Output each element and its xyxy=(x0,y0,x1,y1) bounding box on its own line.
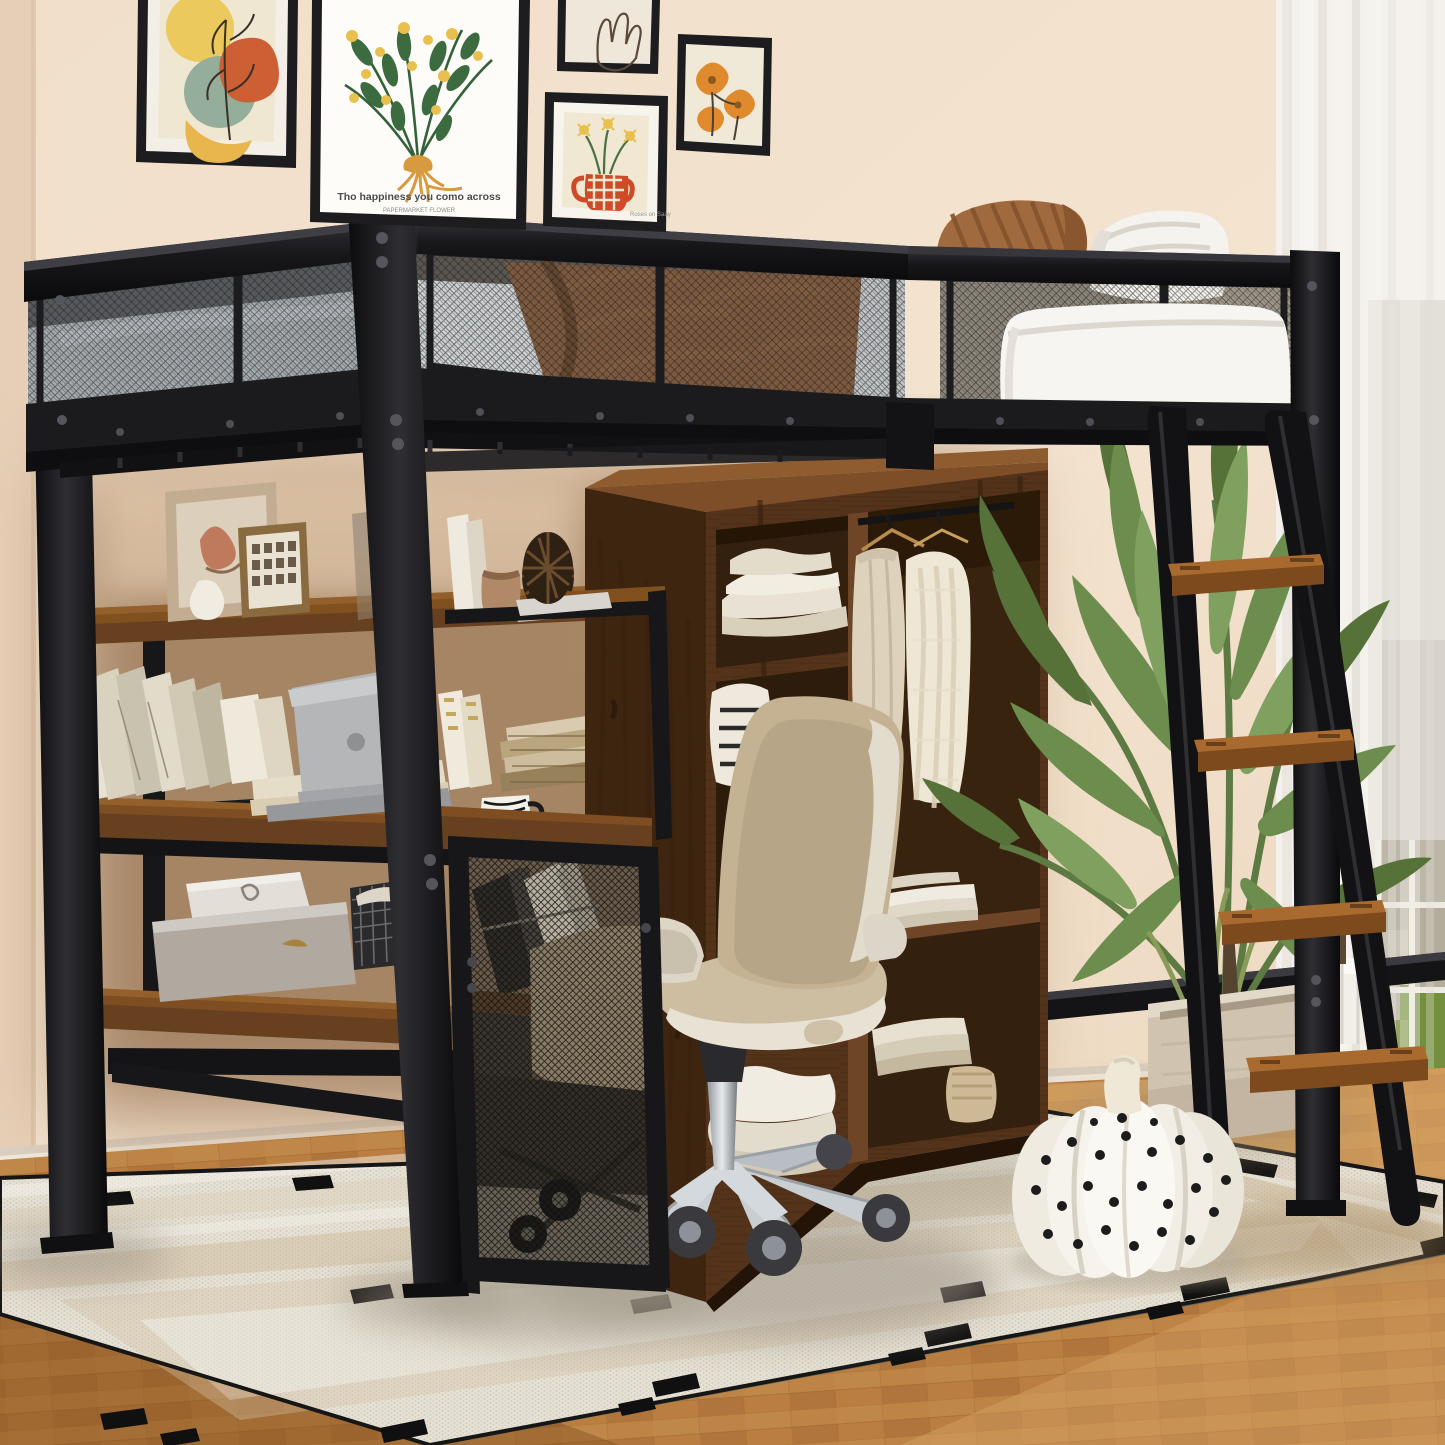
svg-text:Tho happiness you como across: Tho happiness you como across xyxy=(337,191,501,203)
svg-text:Roses on Saay: Roses on Saay xyxy=(630,212,671,218)
svg-text:PAPERMARKET FLOWER: PAPERMARKET FLOWER xyxy=(383,208,456,214)
